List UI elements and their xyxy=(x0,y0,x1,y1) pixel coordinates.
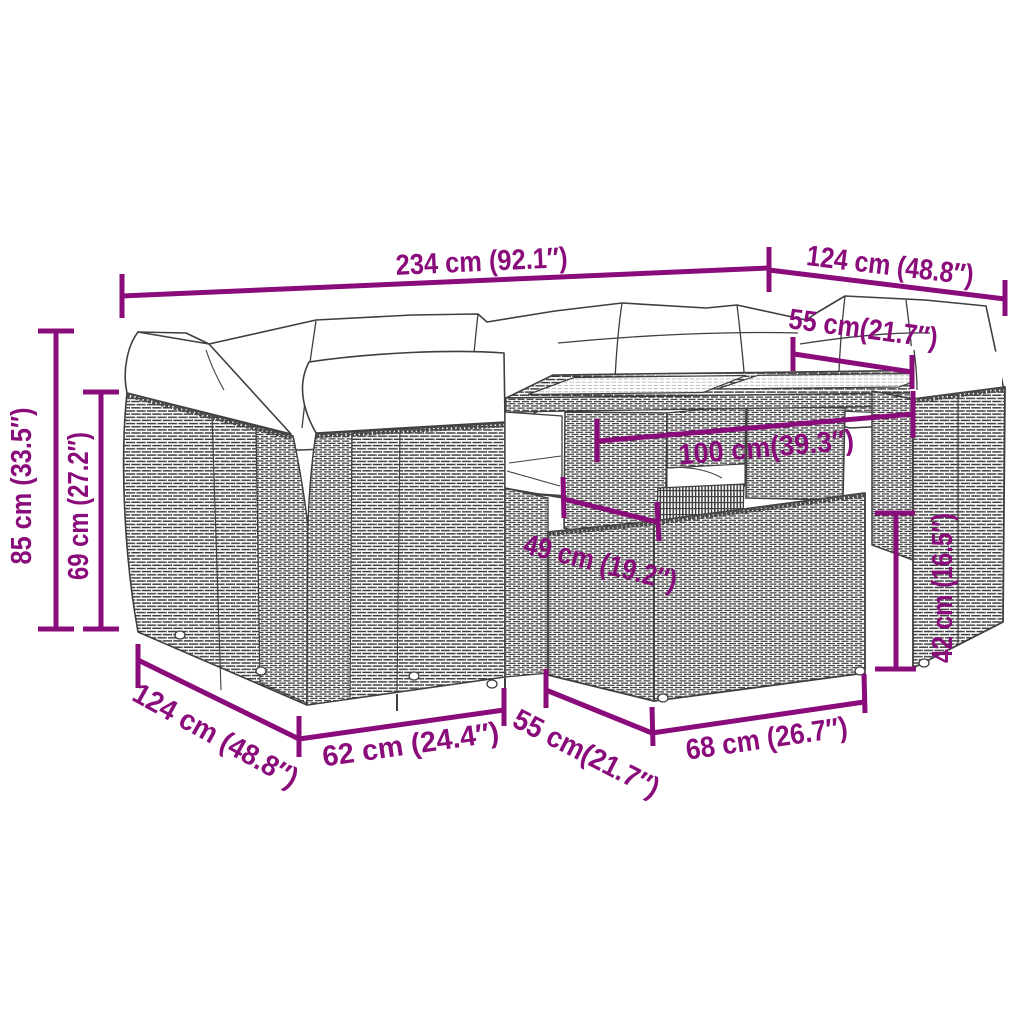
svg-text:42 cm (16.5″): 42 cm (16.5″) xyxy=(927,513,959,663)
svg-text:85 cm (33.5″): 85 cm (33.5″) xyxy=(6,408,38,565)
svg-text:69 cm (27.2″): 69 cm (27.2″) xyxy=(63,432,95,580)
